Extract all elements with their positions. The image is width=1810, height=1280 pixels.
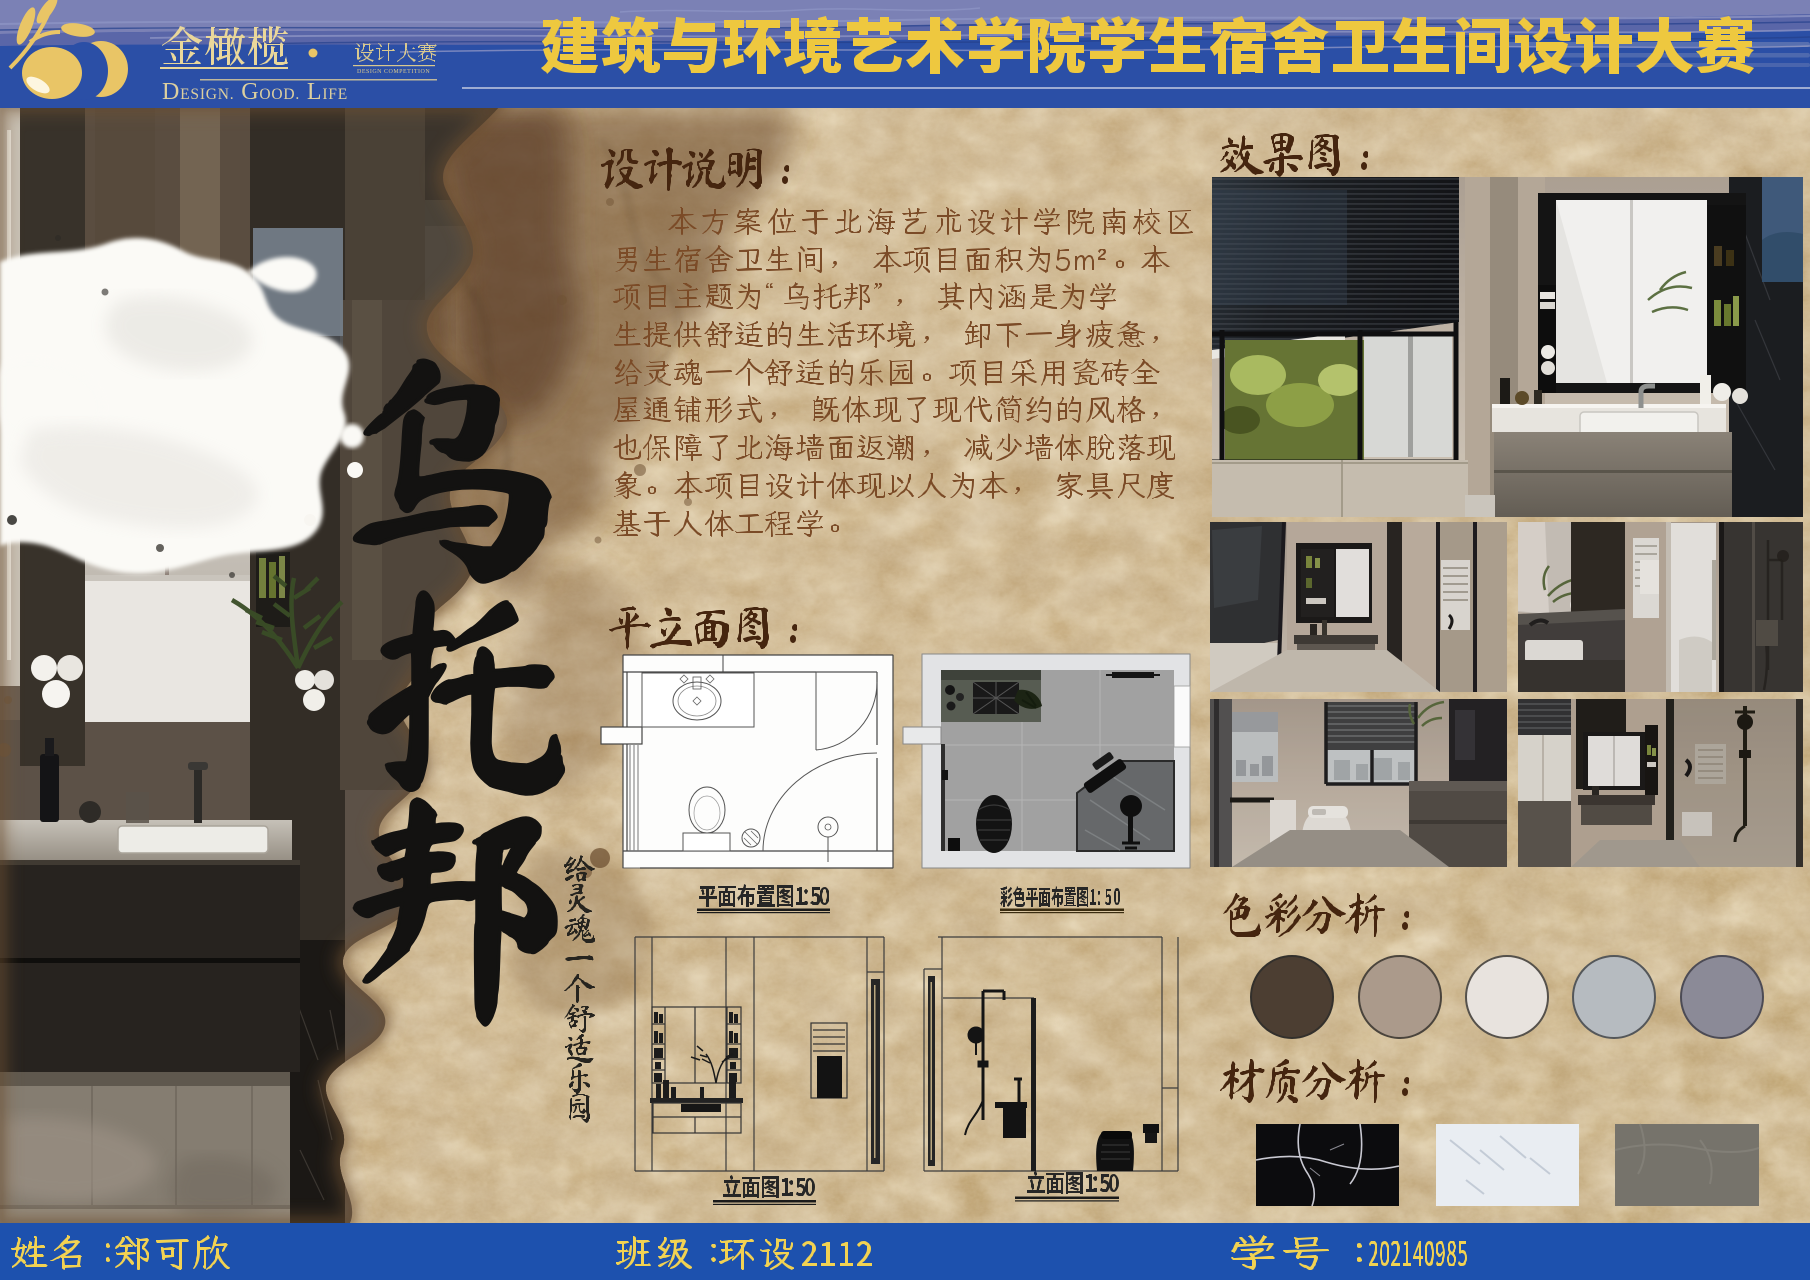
- svg-text:DESIGN COMPETITION: DESIGN COMPETITION: [357, 69, 430, 75]
